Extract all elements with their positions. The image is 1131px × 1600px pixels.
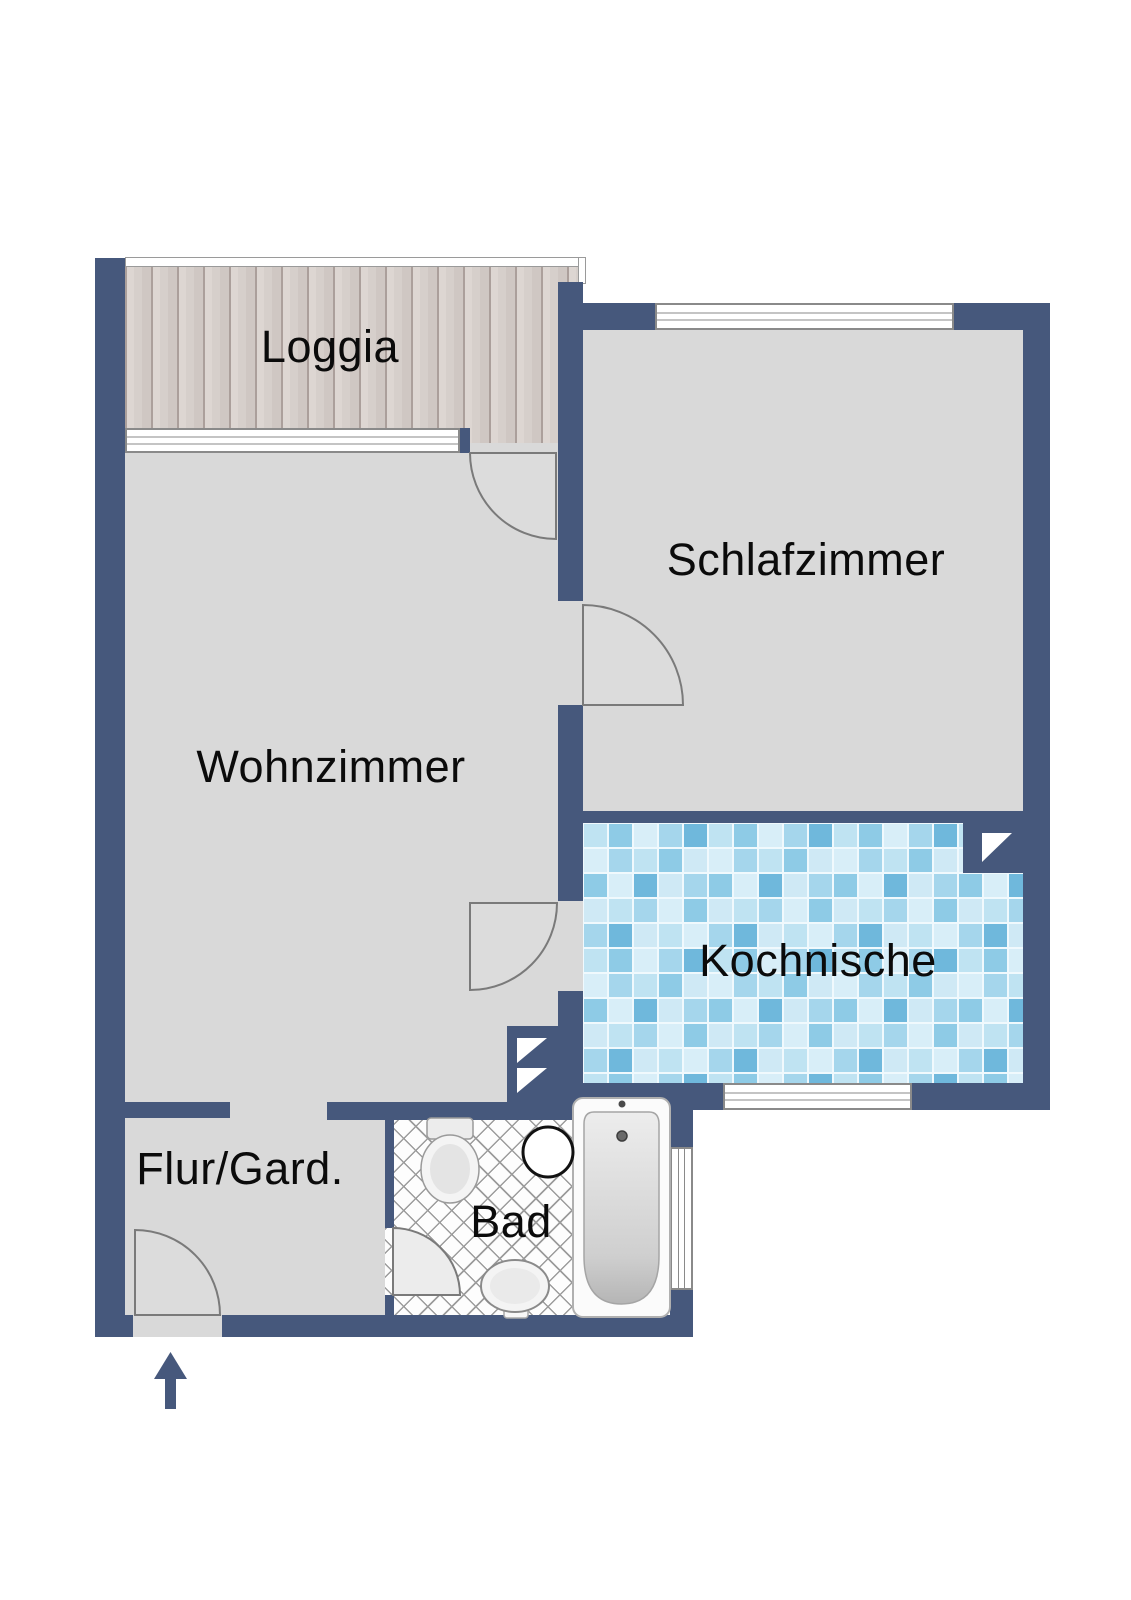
washbasin-icon: [481, 1260, 549, 1318]
toilet-icon: [421, 1118, 479, 1203]
schlafzimmer-door-swing: [583, 605, 683, 705]
flur-label: Flur/Gard.: [136, 1143, 344, 1195]
kochnische-label: Kochnische: [699, 935, 937, 987]
kochnische-door-swing: [470, 903, 557, 990]
round-basin-icon: [523, 1127, 573, 1177]
shaft-triangle-2: [517, 1068, 547, 1093]
shaft-triangle-3: [982, 833, 1012, 862]
bad-door-swing: [393, 1228, 460, 1295]
bad-label: Bad: [470, 1196, 552, 1248]
plan-symbols-layer: [0, 0, 1131, 1600]
loggia-door-swing: [470, 453, 556, 539]
loggia-label: Loggia: [261, 321, 399, 373]
entrance-door-swing: [135, 1230, 220, 1315]
entrance-arrow-icon: [154, 1352, 187, 1409]
schlafzimmer-label: Schlafzimmer: [667, 534, 946, 586]
wohnzimmer-label: Wohnzimmer: [196, 741, 465, 793]
shaft-triangle-1: [517, 1038, 547, 1063]
floor-plan: Loggia Schlafzimmer Wohnzimmer Kochnisch…: [0, 0, 1131, 1600]
bathtub-icon: [573, 1098, 670, 1317]
